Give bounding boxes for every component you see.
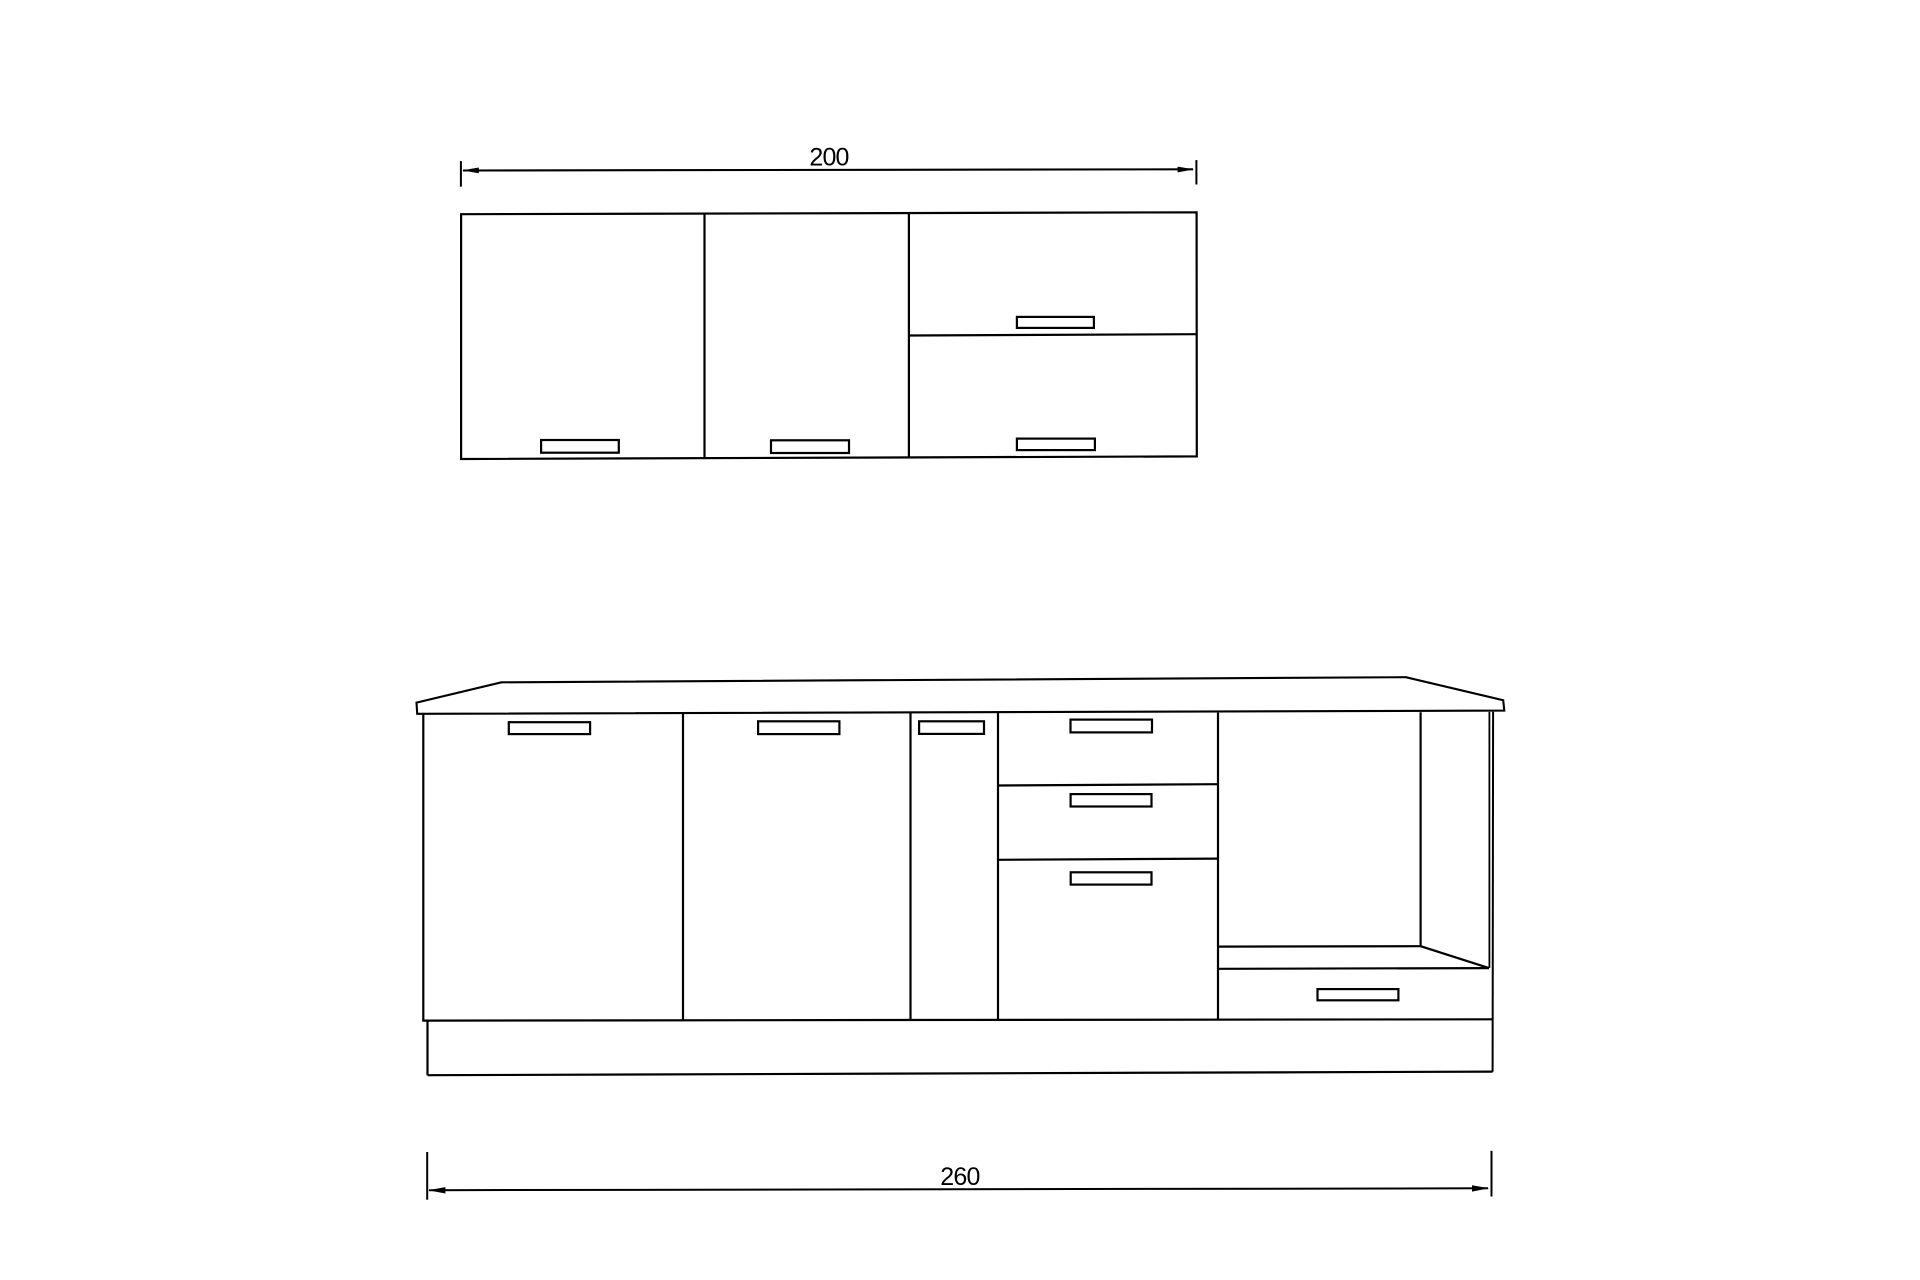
svg-text:260: 260 bbox=[940, 1163, 979, 1191]
svg-text:200: 200 bbox=[809, 144, 848, 172]
